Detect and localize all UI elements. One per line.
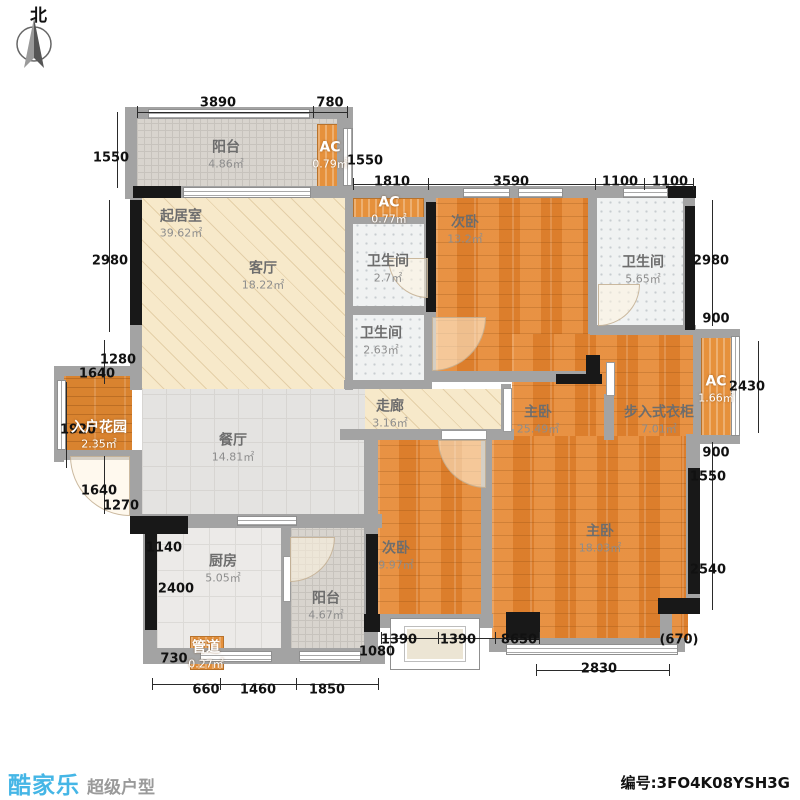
dim-16: 730 — [160, 652, 187, 667]
dim-23: 8650 — [501, 633, 537, 648]
dim-2: 1550 — [93, 151, 129, 166]
dim-line-3 — [347, 106, 348, 118]
label-pipe-duct: 管道0.27㎡ — [188, 640, 224, 671]
label-living-hall: 客厅18.22㎡ — [242, 261, 285, 292]
door-leaf-0 — [503, 388, 512, 432]
black-wall-12 — [364, 614, 380, 632]
room-area: 5.65㎡ — [622, 272, 664, 285]
label-living-room: 起居室39.62㎡ — [160, 209, 203, 240]
room-area: 7.01㎡ — [624, 422, 694, 435]
room-name: 厨房 — [205, 554, 241, 572]
brand-logo: 酷家乐 — [8, 766, 80, 800]
dim-line-17 — [220, 678, 221, 690]
room-area: 14.81㎡ — [212, 450, 255, 463]
room-name: AC — [698, 374, 734, 392]
room-area: 0.77㎡ — [371, 212, 407, 225]
room-name: 入户花园 — [71, 420, 127, 438]
label-entry-garden: 入户花园2.35㎡ — [71, 420, 127, 451]
dim-25: (670) — [659, 633, 698, 648]
floor-plan: 北 酷家乐 超级户型 编号:3FO4K08YSH3G 3890780155015… — [0, 0, 800, 800]
label-ac-top: AC0.79㎡ — [312, 140, 348, 171]
room-name: 次卧 — [378, 541, 414, 559]
room-name: 主卧 — [517, 405, 560, 423]
room-name: 走廊 — [372, 399, 408, 417]
room-name: AC — [371, 195, 407, 213]
dim-9: 1280 — [100, 353, 136, 368]
dim-18: 1460 — [240, 683, 276, 698]
black-wall-6 — [556, 374, 602, 384]
dim-12: 1640 — [81, 484, 117, 499]
label-bath-2: 卫生间2.63㎡ — [360, 326, 402, 357]
room-name: 卫生间 — [360, 326, 402, 344]
dim-0: 3890 — [200, 96, 236, 111]
dim-line-2 — [313, 106, 314, 118]
dim-4: 1810 — [374, 175, 410, 190]
dim-line-0 — [137, 112, 347, 113]
dim-1: 780 — [316, 96, 343, 111]
room-area: 3.16㎡ — [372, 416, 408, 429]
label-master-bedroom: 主卧18.03㎡ — [579, 524, 622, 555]
dim-line-5 — [353, 178, 354, 190]
dim-line-9 — [693, 178, 694, 190]
room-area: 13.2㎡ — [447, 232, 483, 245]
window-1 — [183, 187, 311, 198]
black-wall-7 — [130, 516, 188, 534]
label-balcony-bottom: 阳台4.67㎡ — [308, 591, 344, 622]
room-area: 0.27㎡ — [188, 657, 224, 670]
window-5 — [623, 188, 668, 198]
room-area: 2.63㎡ — [360, 343, 402, 356]
wall-36 — [604, 394, 614, 440]
room-name: AC — [312, 140, 348, 158]
compass-needle-icon — [8, 12, 60, 74]
dim-28: 2430 — [729, 380, 765, 395]
room-area: 4.67㎡ — [308, 608, 344, 621]
room-name: 餐厅 — [212, 433, 255, 451]
dim-8: 2980 — [92, 254, 128, 269]
watermark: 酷家乐 超级户型 — [8, 766, 155, 800]
room-area: 1.66㎡ — [698, 391, 734, 404]
dim-line-27 — [669, 664, 670, 676]
room-name: 步入式衣柜 — [624, 405, 694, 423]
dim-line-26 — [536, 664, 537, 676]
dim-27: 900 — [702, 312, 729, 327]
room-area: 25.49㎡ — [517, 422, 560, 435]
room-area: 0.79㎡ — [312, 157, 348, 170]
room-area: 2.35㎡ — [71, 437, 127, 450]
dim-14: 1140 — [146, 541, 182, 556]
room-area: 5.05㎡ — [205, 571, 241, 584]
dim-7: 1100 — [652, 175, 688, 190]
label-master-suite: 主卧25.49㎡ — [517, 405, 560, 436]
room-name: 卫生间 — [622, 255, 664, 273]
wall-11 — [590, 325, 696, 335]
label-ac-mid: AC0.77㎡ — [371, 195, 407, 226]
dim-6: 1100 — [602, 175, 638, 190]
room-area: 39.62㎡ — [160, 226, 203, 239]
dim-22: 1390 — [440, 633, 476, 648]
dim-line-30 — [712, 442, 713, 610]
room-name: 卫生间 — [367, 254, 409, 272]
dim-24: 2830 — [581, 662, 617, 677]
dim-29: 900 — [702, 446, 729, 461]
window-8 — [237, 516, 297, 526]
dim-line-6 — [428, 178, 429, 190]
window-3 — [463, 188, 510, 198]
window-7 — [57, 380, 66, 450]
dim-line-1 — [137, 106, 138, 118]
label-kitchen: 厨房5.05㎡ — [205, 554, 241, 585]
dim-5: 3590 — [493, 175, 529, 190]
room-area: 18.03㎡ — [579, 541, 622, 554]
dim-line-23 — [495, 632, 496, 644]
room-area: 18.22㎡ — [242, 278, 285, 291]
brand-tagline: 超级户型 — [87, 773, 155, 798]
room-name: 起居室 — [160, 209, 203, 227]
room-name: 客厅 — [242, 261, 285, 279]
label-bedroom-2a: 次卧13.2㎡ — [447, 215, 483, 246]
dim-17: 660 — [192, 683, 219, 698]
room-name: 阳台 — [308, 591, 344, 609]
dim-21: 1390 — [381, 633, 417, 648]
black-wall-11 — [658, 598, 700, 614]
wall-28 — [364, 430, 378, 530]
dim-13: 1270 — [103, 499, 139, 514]
room-area: 2.7㎡ — [367, 271, 409, 284]
wall-17 — [344, 380, 432, 389]
window-10 — [299, 651, 361, 662]
dim-19: 1850 — [309, 683, 345, 698]
label-bath-3: 卫生间5.65㎡ — [622, 255, 664, 286]
dim-15: 2400 — [158, 582, 194, 597]
label-bath-1: 卫生间2.7㎡ — [367, 254, 409, 285]
north-arrow: 北 — [8, 4, 62, 74]
dim-31: 2540 — [690, 563, 726, 578]
wall-9 — [588, 198, 597, 334]
black-wall-0 — [133, 186, 181, 198]
dim-line-22 — [438, 632, 439, 644]
black-wall-1 — [130, 200, 142, 325]
dim-line-8 — [644, 178, 645, 190]
label-walkin-closet: 步入式衣柜7.01㎡ — [624, 405, 694, 436]
dim-10: 1640 — [79, 367, 115, 382]
room-area: 9.97㎡ — [378, 558, 414, 571]
wall-13 — [693, 435, 740, 444]
label-balcony-top: 阳台4.86㎡ — [208, 140, 244, 171]
window-4 — [518, 188, 563, 198]
plan-serial-number: 编号:3FO4K08YSH3G — [621, 772, 790, 793]
wall-16 — [346, 306, 428, 315]
label-ac-right: AC1.66㎡ — [698, 374, 734, 405]
door-leaf-3 — [441, 430, 487, 440]
label-bedroom-2b: 次卧9.97㎡ — [378, 541, 414, 572]
dim-line-18 — [296, 678, 297, 690]
room-name: 次卧 — [447, 215, 483, 233]
window-0 — [148, 109, 310, 119]
dim-line-19 — [378, 678, 379, 690]
room-name: 阳台 — [208, 140, 244, 158]
dim-line-7 — [595, 178, 596, 190]
room-area: 4.86㎡ — [208, 157, 244, 170]
room-name: 主卧 — [579, 524, 622, 542]
dim-line-24 — [539, 632, 540, 644]
room-name: 管道 — [188, 640, 224, 658]
wall-7 — [345, 198, 353, 390]
label-corridor: 走廊3.16㎡ — [372, 399, 408, 430]
dim-30: 1550 — [690, 470, 726, 485]
door-leaf-1 — [606, 362, 615, 396]
label-dining: 餐厅14.81㎡ — [212, 433, 255, 464]
dim-3: 1550 — [347, 154, 383, 169]
dim-26: 2980 — [693, 254, 729, 269]
dim-line-16 — [152, 678, 153, 690]
